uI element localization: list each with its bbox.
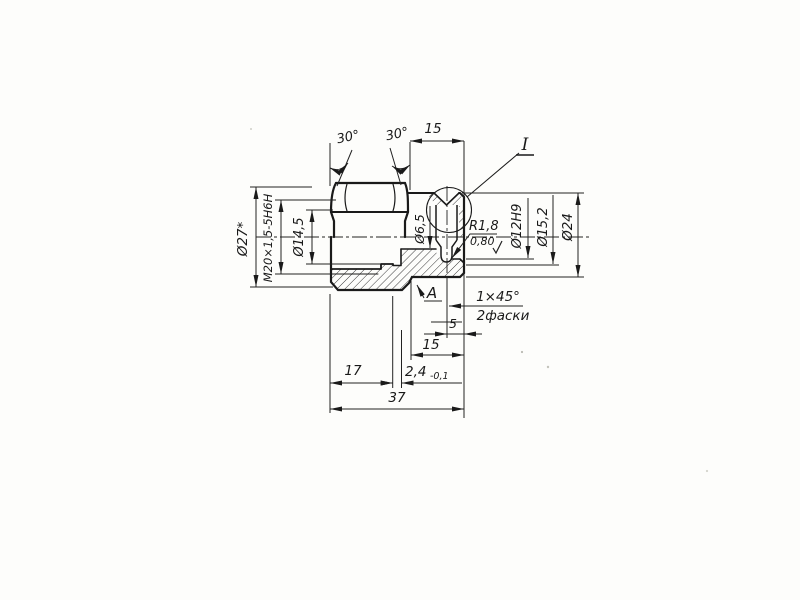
section-hatching — [331, 194, 464, 290]
dim-angle-30-right: 30° — [384, 125, 410, 144]
dim-length-15-top: 15 — [424, 121, 441, 137]
dim-length-2-4-tolerance: -0,1 — [430, 371, 449, 382]
chamfer-note: 2фаски — [477, 308, 530, 324]
dim-length-37: 37 — [388, 390, 406, 406]
dim-diameter-6-5: Ø6,5 — [412, 214, 427, 245]
dim-length-15-bottom: 15 — [422, 337, 439, 353]
dim-length-2-4: 2,4 — [405, 364, 426, 380]
dim-diameter-14-5: Ø14,5 — [292, 217, 307, 257]
dim-length-17: 17 — [344, 363, 362, 379]
vertical-hole — [436, 205, 457, 262]
chamfer-callout: 1×45° — [476, 289, 520, 305]
view-arrow-label: А — [426, 284, 437, 302]
dim-diameter-15-2: Ø15,2 — [536, 207, 551, 247]
technical-drawing: Ø27* М20×1,5-5Н6Н Ø14,5 30° 30° 15 I Ø6,… — [0, 0, 800, 600]
scanned-drawing-page: Ø27* М20×1,5-5Н6Н Ø14,5 30° 30° 15 I Ø6,… — [0, 0, 800, 600]
dim-diameter-27: Ø27* — [235, 221, 251, 257]
roughness-value: 0,80 — [470, 235, 495, 248]
dim-diameter-12h9: Ø12Н9 — [510, 204, 525, 250]
dim-angle-30-left: 30° — [335, 128, 361, 147]
dim-length-5: 5 — [449, 316, 457, 331]
dim-diameter-24: Ø24 — [560, 213, 576, 242]
dim-thread-m20: М20×1,5-5Н6Н — [261, 193, 275, 282]
dim-radius-1-8: R1,8 — [469, 219, 499, 234]
part-outline-upper — [331, 183, 464, 273]
detail-mark-label: I — [521, 135, 529, 155]
